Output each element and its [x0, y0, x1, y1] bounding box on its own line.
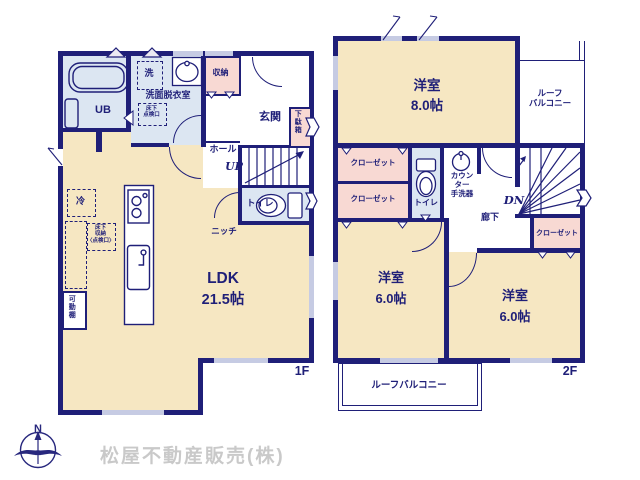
closet-door-chevrons	[124, 92, 575, 258]
f2-basin-label: カウン ター 手洗器	[444, 172, 480, 199]
f1-washroom-label: 洗面脱衣室	[135, 90, 201, 101]
f2-roof-balcony-top-label: ルーフ バルコニー	[519, 88, 581, 108]
f1-up-label: UP	[222, 161, 246, 174]
f2-counter-basin-icon	[453, 152, 470, 171]
f1-underfloor-hatch-label: 床下 点検口	[138, 106, 165, 119]
f1-ldk-name: LDK	[192, 270, 254, 288]
f2-hall-label: 廊下	[476, 212, 504, 223]
kitchen-counter-icon	[125, 186, 154, 325]
f1-ub-label: UB	[83, 104, 123, 117]
f1-washer-label: 洗	[137, 68, 161, 79]
f2-room6b-name: 洋室	[498, 288, 532, 303]
f1-vent-triangles	[107, 48, 161, 57]
f1-hall-label: ホール	[203, 144, 243, 155]
f2-closet2-label: クローゼット	[341, 195, 405, 204]
f2-floor-label: 2F	[552, 364, 588, 379]
f2-roof-balcony-bottom-label: ルーフバルコニー	[357, 380, 461, 391]
f1-storage-label: 収納	[204, 68, 237, 77]
f2-dn-label: DN	[500, 194, 528, 208]
compass-icon	[14, 431, 62, 468]
vanity-sink-icon	[173, 58, 202, 86]
f1-floor-label: 1F	[284, 364, 320, 379]
f1-shelf-label: 可動棚	[67, 295, 75, 319]
f2-toilet-label: トイレ	[412, 198, 440, 207]
f1-ldk-size: 21.5帖	[184, 292, 262, 309]
f2-casement-windows-top	[383, 16, 437, 40]
bathtub-icon	[65, 63, 128, 128]
f2-room6b-size: 6.0帖	[492, 309, 538, 324]
f1-toilet-label: トイレ	[244, 198, 276, 209]
f2-toilet-icon	[417, 159, 436, 197]
f2-closet3-label: クローゼット	[535, 230, 579, 238]
floor-plan: UB 洗 洗面脱衣室 床下 点検口 収納 玄関 下駄箱 ホール UP トイレ ニ…	[0, 0, 640, 480]
f2-room6a-name: 洋室	[374, 270, 408, 285]
f1-casement-window-left	[48, 148, 62, 165]
f1-shoebox-label: 下駄箱	[293, 110, 301, 134]
f1-fridge-label: 冷	[67, 196, 94, 207]
f1-underfloor-storage-label: 床下 収納 〈点検口〉	[87, 225, 114, 244]
f1-entrance-arrow	[306, 118, 319, 136]
f2-room8-name: 洋室	[407, 78, 447, 94]
f2-room6a-size: 6.0帖	[368, 291, 414, 306]
f1-entrance-label: 玄関	[253, 111, 287, 124]
f1-toilet-vent-arrow	[306, 193, 317, 209]
f1-stairs	[245, 148, 304, 185]
company-name: 松屋不動産販売(株)	[100, 441, 285, 468]
f2-closet1-label: クローゼット	[341, 159, 405, 168]
f1-niche-label: ニッチ	[203, 226, 245, 236]
f2-stairs-exit-arrow	[577, 190, 591, 206]
compass-north-label: N	[31, 423, 45, 436]
f2-room8-size: 8.0帖	[403, 98, 451, 114]
